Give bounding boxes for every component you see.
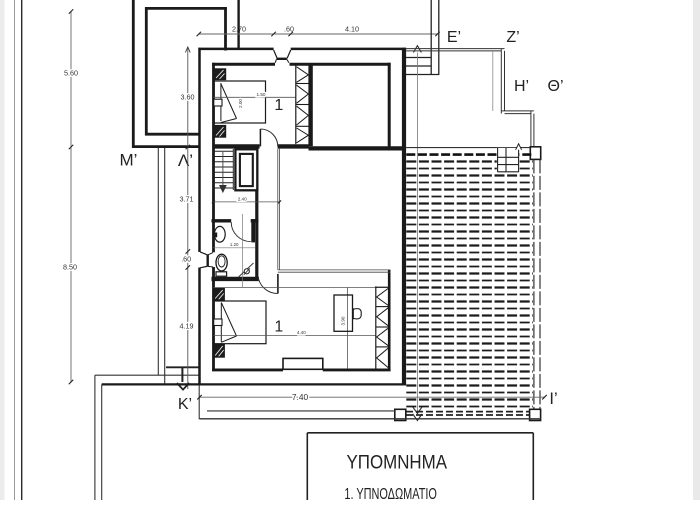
- svg-text:Ζ’: Ζ’: [506, 29, 519, 46]
- svg-text:5.60: 5.60: [64, 69, 78, 78]
- svg-text:8.50: 8.50: [63, 263, 77, 272]
- svg-text:2.70: 2.70: [232, 25, 246, 34]
- svg-text:2.00: 2.00: [238, 99, 243, 108]
- svg-text:1: 1: [274, 318, 283, 335]
- svg-text:3.60: 3.60: [181, 93, 195, 102]
- svg-text:ΥΠΟΜΝΗΜΑ: ΥΠΟΜΝΗΜΑ: [347, 452, 448, 474]
- svg-text:4.40: 4.40: [297, 330, 306, 335]
- svg-text:3.71: 3.71: [180, 195, 194, 204]
- svg-text:3.90: 3.90: [341, 316, 346, 325]
- svg-text:4.19: 4.19: [180, 322, 194, 331]
- svg-text:1: 1: [274, 97, 283, 114]
- svg-text:.60: .60: [284, 25, 294, 34]
- svg-text:Μ’: Μ’: [120, 151, 138, 170]
- svg-text:1.50: 1.50: [257, 92, 266, 97]
- svg-text:.60: .60: [181, 255, 191, 264]
- svg-text:Η’: Η’: [514, 78, 529, 95]
- svg-text:7.40: 7.40: [292, 392, 309, 402]
- svg-text:1. ΥΠΝΟΔΩΜΑΤΙΟ: 1. ΥΠΝΟΔΩΜΑΤΙΟ: [344, 486, 437, 500]
- svg-text:Λ’: Λ’: [178, 151, 193, 170]
- svg-text:Ι’: Ι’: [549, 390, 557, 408]
- svg-text:Θ’: Θ’: [548, 78, 564, 95]
- svg-text:Ε’: Ε’: [447, 29, 461, 46]
- svg-text:Κ’: Κ’: [178, 396, 192, 413]
- svg-text:1.20: 1.20: [230, 242, 239, 247]
- svg-text:4.10: 4.10: [345, 25, 359, 34]
- svg-text:2.40: 2.40: [238, 197, 247, 202]
